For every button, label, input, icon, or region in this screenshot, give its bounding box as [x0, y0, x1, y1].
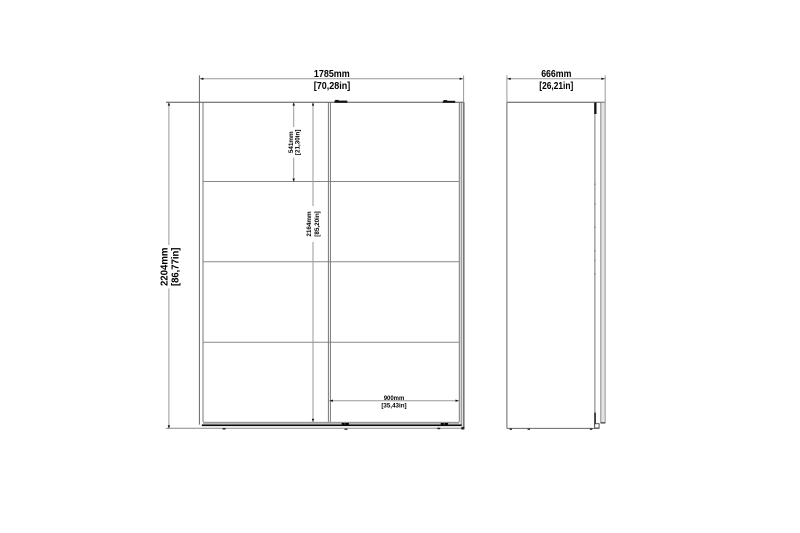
svg-text:1785mm: 1785mm [314, 68, 350, 80]
svg-text:2164mm: 2164mm [306, 211, 313, 237]
svg-text:900mm: 900mm [384, 395, 405, 402]
svg-text:[86,77in]: [86,77in] [171, 248, 182, 287]
svg-text:[21,30in]: [21,30in] [294, 130, 301, 156]
svg-text:2204mm: 2204mm [159, 247, 170, 286]
svg-text:[85,20in]: [85,20in] [314, 211, 321, 237]
svg-text:[26,21in]: [26,21in] [539, 80, 573, 92]
svg-text:[70,28in]: [70,28in] [314, 80, 351, 92]
svg-text:[35,43in]: [35,43in] [381, 403, 406, 410]
svg-text:666mm: 666mm [541, 68, 571, 80]
